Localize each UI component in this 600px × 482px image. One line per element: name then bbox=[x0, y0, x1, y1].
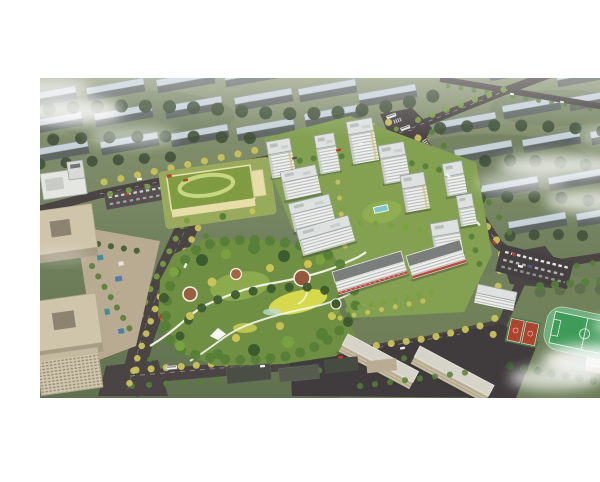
central-park bbox=[150, 238, 366, 366]
rendering-canvas bbox=[40, 16, 600, 466]
aerial-rendering-photo bbox=[40, 16, 600, 466]
